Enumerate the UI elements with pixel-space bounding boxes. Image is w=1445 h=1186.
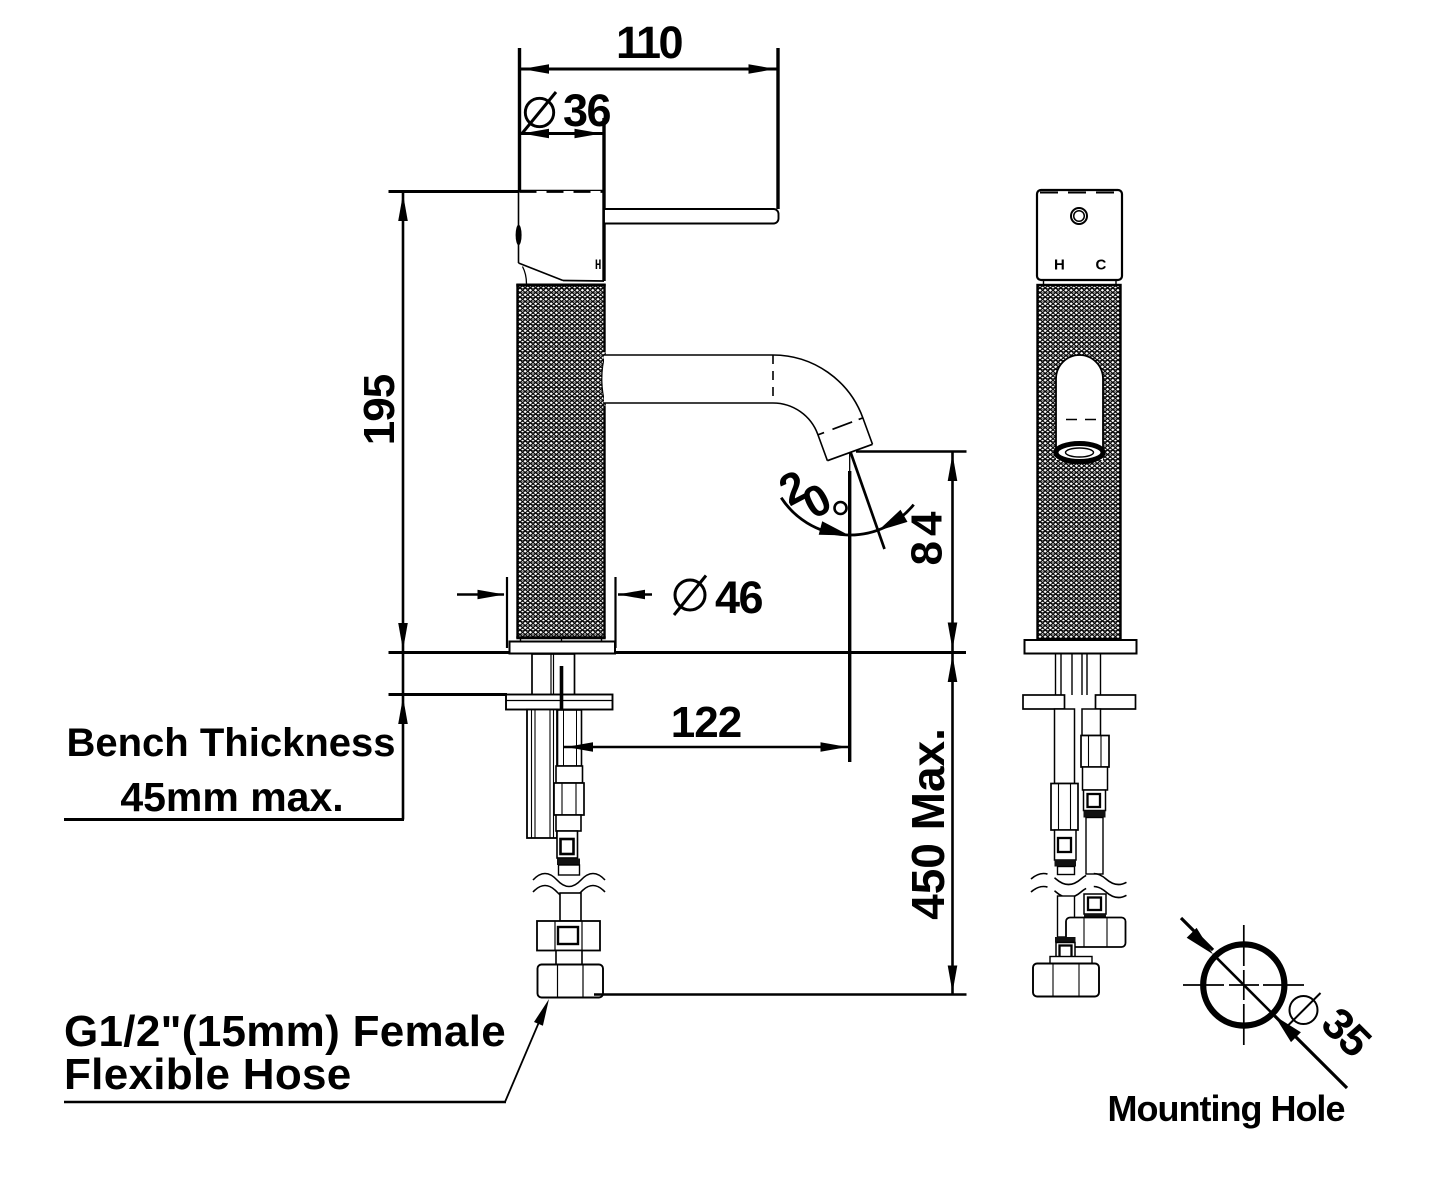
svg-text:Flexible Hose: Flexible Hose — [64, 1050, 352, 1099]
svg-text:Bench Thickness: Bench Thickness — [66, 721, 395, 765]
svg-text:195: 195 — [355, 374, 404, 445]
svg-text:110: 110 — [616, 17, 683, 68]
svg-text:H: H — [1054, 257, 1065, 274]
svg-text:Mounting Hole: Mounting Hole — [1108, 1088, 1345, 1129]
svg-text:C: C — [1096, 257, 1107, 274]
svg-text:84: 84 — [903, 507, 952, 566]
svg-text:36: 36 — [563, 85, 611, 136]
svg-text:122: 122 — [671, 698, 741, 747]
svg-text:450 Max.: 450 Max. — [902, 728, 954, 920]
svg-text:46: 46 — [715, 572, 763, 623]
svg-text:45mm max.: 45mm max. — [120, 774, 343, 820]
svg-text:G1/2"(15mm) Female: G1/2"(15mm) Female — [64, 1007, 506, 1056]
